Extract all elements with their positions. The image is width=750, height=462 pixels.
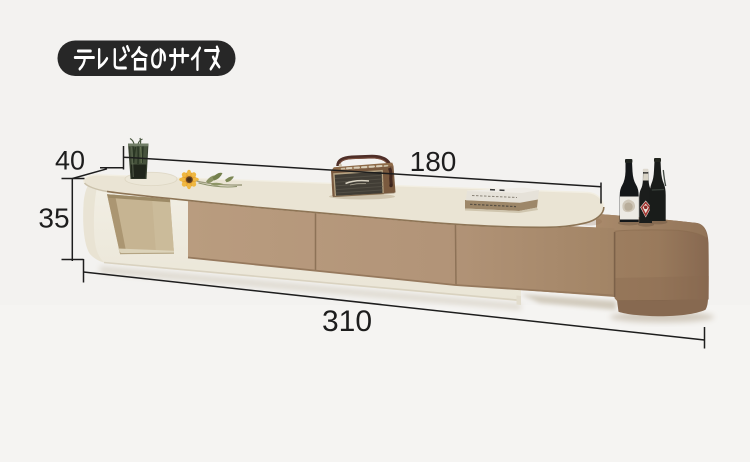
svg-text:40: 40: [55, 146, 85, 176]
svg-text:180: 180: [410, 146, 457, 177]
svg-text:310: 310: [322, 305, 372, 338]
svg-text:35: 35: [38, 203, 69, 234]
